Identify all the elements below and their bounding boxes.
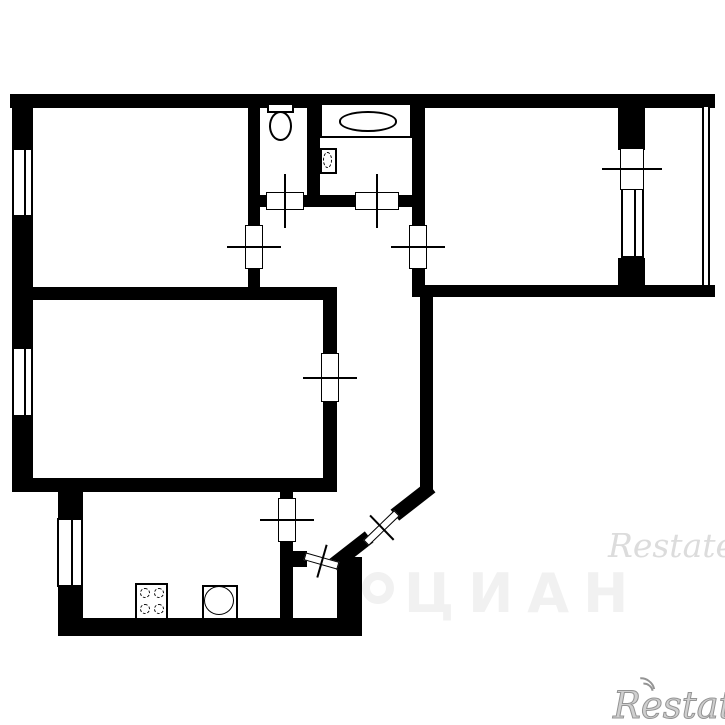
door-room2-tick — [391, 246, 445, 248]
bathtub-basin — [339, 111, 396, 131]
door-living-tick — [303, 377, 357, 379]
window-kitchen — [57, 518, 83, 587]
outer-left-b — [12, 217, 33, 347]
sink-basin — [323, 152, 332, 168]
kitchen-right-b — [280, 540, 293, 620]
window-room2-mullion — [634, 190, 636, 256]
door-kitchen — [278, 498, 296, 542]
burner — [140, 588, 150, 598]
door-wc-tick — [284, 174, 286, 228]
door-living — [321, 353, 339, 402]
mid-horizontal — [12, 287, 337, 300]
kitchen-sink-icon — [202, 585, 238, 620]
cian-watermark: ЦИАН — [404, 562, 642, 625]
door-room1-tick — [227, 246, 281, 248]
window-living-mullion — [24, 349, 26, 415]
living-right-a — [323, 300, 337, 355]
bathtub-icon — [320, 103, 412, 138]
outer-left-a — [12, 94, 33, 148]
door-room2 — [409, 225, 427, 269]
window-room2 — [621, 188, 644, 258]
door-balcony — [620, 148, 644, 190]
door-wc — [266, 192, 304, 210]
bath-sink-icon — [320, 148, 337, 174]
outer-bottom — [58, 618, 362, 636]
floorplan-image: ЦИАН Restate Restate — [0, 0, 725, 725]
burner — [140, 604, 150, 614]
entry-right — [337, 557, 362, 636]
hall-right — [420, 297, 433, 490]
toilet-bowl — [269, 111, 292, 141]
sink-bowl — [204, 586, 234, 615]
door-entry-main-tick — [369, 515, 394, 541]
living-right-b — [323, 400, 337, 492]
door-bathroom-tick — [376, 174, 378, 228]
wc-front-c — [397, 195, 412, 207]
room1-right-b — [248, 267, 260, 287]
room1-right-a — [248, 107, 260, 227]
room2-left-a — [412, 107, 425, 227]
stove-icon — [135, 583, 168, 620]
window-living — [12, 347, 33, 417]
window-room1-mullion — [24, 150, 26, 215]
door-entry-inner-tick — [316, 544, 327, 577]
wc-front-b — [302, 195, 357, 207]
wc-bath-divider — [307, 107, 320, 195]
balcony-partition-a — [618, 107, 645, 150]
door-entry-main — [363, 510, 399, 546]
kitchen-left-a — [58, 490, 83, 518]
room2-bottom — [412, 285, 715, 297]
door-room1 — [245, 225, 263, 269]
wc-front-a — [248, 195, 268, 207]
cian-watermark-logo — [362, 572, 394, 604]
balcony-glazing — [702, 107, 710, 285]
balcony-partition-b — [618, 258, 645, 285]
restate-watermark-middle: Restate — [608, 526, 725, 565]
window-kitchen-mullion — [71, 520, 73, 585]
toilet-icon — [267, 103, 295, 142]
window-room1 — [12, 148, 33, 217]
burner — [154, 604, 164, 614]
burner — [154, 588, 164, 598]
door-bathroom — [355, 192, 399, 210]
door-balcony-tick — [602, 168, 662, 170]
door-kitchen-tick — [260, 519, 314, 521]
